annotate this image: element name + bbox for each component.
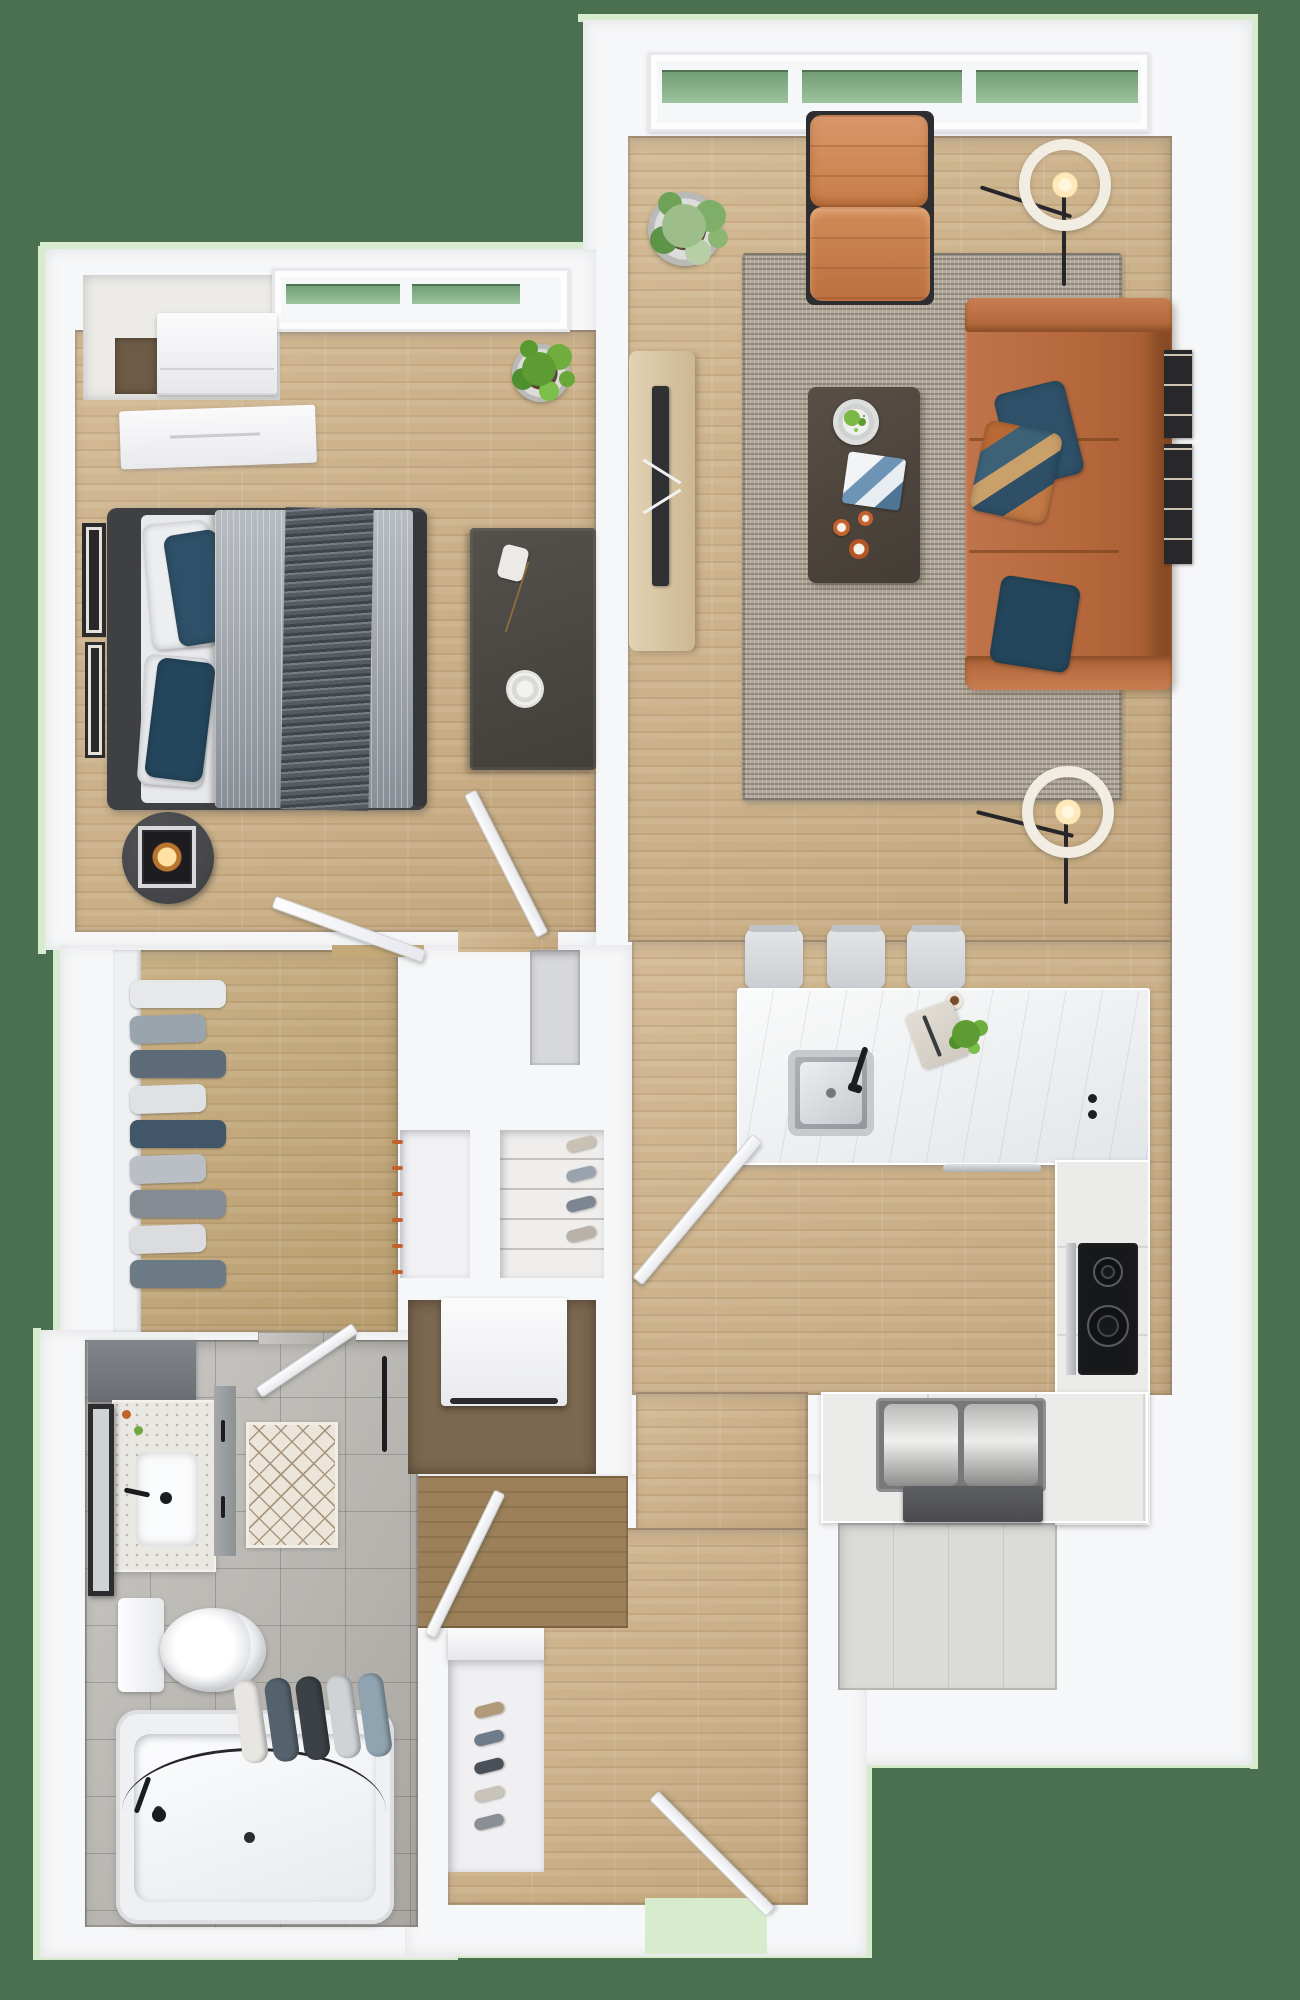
hanging-garment	[130, 1084, 207, 1115]
vanity-faucet-dot	[160, 1492, 172, 1504]
entry-shoe	[473, 1729, 505, 1748]
hall-floor-upper	[636, 1392, 808, 1534]
tub-towels	[236, 1672, 397, 1772]
island-towel-rail	[943, 1164, 1041, 1172]
washer-door-slot	[450, 1398, 558, 1404]
bar-stool	[827, 929, 885, 989]
cabinet-handle	[221, 1420, 225, 1442]
tv	[652, 386, 669, 586]
alcove-floor-gap	[115, 338, 157, 394]
hanging-garment	[130, 1014, 207, 1045]
entry-bench-shelf	[448, 1628, 544, 1660]
window-pane	[976, 70, 1138, 103]
bedroom-dresser	[119, 405, 317, 470]
bath-towel-bar	[382, 1356, 387, 1452]
table-cup	[833, 519, 850, 536]
tub-drain	[244, 1832, 255, 1843]
cooktop-steel-trim	[1066, 1243, 1076, 1375]
toilet-tank	[118, 1598, 164, 1692]
ring-floor-lamp-bottom	[1022, 766, 1114, 858]
orange-pull	[392, 1218, 403, 1222]
floor-plan-stage	[0, 0, 1300, 2000]
sofa-armrest-top	[965, 298, 1172, 332]
serving-dish-lid	[884, 1404, 958, 1486]
orange-pull	[392, 1166, 403, 1170]
gallery-wall-frames	[1164, 350, 1192, 438]
shelf-shoe	[565, 1225, 597, 1244]
orange-pull	[392, 1140, 403, 1144]
sofa-seam	[969, 550, 1119, 553]
table-cup	[849, 539, 869, 559]
shelf-shoe	[565, 1165, 597, 1184]
accent-chair	[810, 115, 930, 301]
desk-decor-doily	[508, 672, 542, 706]
cooktop-burner-small	[1093, 1257, 1123, 1287]
entry-doorway-exterior	[645, 1898, 767, 1954]
induction-cooktop	[1078, 1243, 1138, 1375]
window-pane	[412, 284, 520, 304]
bed-foot-rail	[413, 512, 427, 806]
kitchen-tile-floor	[838, 1523, 1057, 1690]
serving-dish-lid	[964, 1404, 1038, 1486]
shelf-shoe	[565, 1135, 597, 1154]
rolled-towel	[356, 1672, 393, 1759]
vanity-decor	[122, 1410, 131, 1419]
washer	[441, 1298, 567, 1406]
bar-stool	[907, 929, 965, 989]
bath-tall-cabinet	[214, 1386, 236, 1556]
vanity-cabinet	[88, 1340, 196, 1402]
orange-pull	[392, 1192, 403, 1196]
lantern-lamp	[138, 826, 196, 888]
island-salt-pepper	[1088, 1094, 1097, 1103]
entry-shoes	[474, 1704, 514, 1860]
sofa-pillow-blue	[989, 574, 1082, 673]
serving-tray	[876, 1398, 1046, 1492]
orange-pull	[392, 1270, 403, 1274]
window-pane	[802, 70, 962, 103]
sofa-pillow-patterned	[968, 419, 1063, 525]
entry-shoe	[473, 1785, 505, 1804]
window-pane	[662, 70, 788, 103]
shelf-shoe	[565, 1195, 597, 1214]
entry-shoe	[473, 1701, 505, 1720]
tub-faucet-knob	[152, 1808, 166, 1822]
hanging-garment	[130, 1050, 226, 1078]
chair-back-cushion	[810, 115, 928, 207]
shoe-shelf-shoes	[566, 1138, 602, 1274]
entry-shoe	[473, 1757, 505, 1776]
wardrobe-seam	[160, 368, 274, 370]
table-tray	[842, 451, 907, 511]
wall-art-frame	[85, 642, 105, 758]
hanging-garment	[130, 1154, 207, 1185]
cooktop-burner-large	[1087, 1305, 1129, 1347]
built-in-wardrobe	[157, 313, 277, 395]
bar-stool	[745, 929, 803, 989]
cabinet-orange-pulls	[392, 1140, 404, 1272]
hall-cabinet-niche	[400, 1130, 470, 1278]
linen-niche	[530, 950, 580, 1065]
chair-seat-cushion	[810, 207, 930, 301]
bedroom-console-desk	[470, 528, 596, 770]
hanging-garment	[130, 1190, 226, 1218]
living-plant	[662, 204, 706, 248]
plate-greens	[844, 410, 860, 426]
bed	[107, 508, 427, 810]
closet-clothes-rail	[130, 980, 240, 1298]
wall-art-frame	[82, 523, 106, 637]
entry-shoe	[473, 1813, 505, 1832]
hanging-garment	[130, 980, 226, 1008]
bedroom-plant	[522, 352, 556, 386]
sink-drain	[826, 1088, 836, 1098]
hanging-garment	[130, 1224, 207, 1255]
hanging-garment	[130, 1260, 226, 1288]
sofa	[965, 298, 1172, 690]
island-herb-plant	[952, 1020, 980, 1048]
bath-mat	[246, 1422, 338, 1548]
gallery-wall-frames	[1164, 444, 1192, 564]
table-cup	[858, 511, 873, 526]
hanging-garment	[130, 1120, 226, 1148]
window-pane	[286, 284, 400, 304]
bed-throw	[280, 507, 373, 810]
vanity-mirror	[88, 1404, 114, 1596]
ring-floor-lamp-top	[1019, 139, 1111, 231]
orange-pull	[392, 1244, 403, 1248]
counter-dark-board	[903, 1486, 1043, 1522]
